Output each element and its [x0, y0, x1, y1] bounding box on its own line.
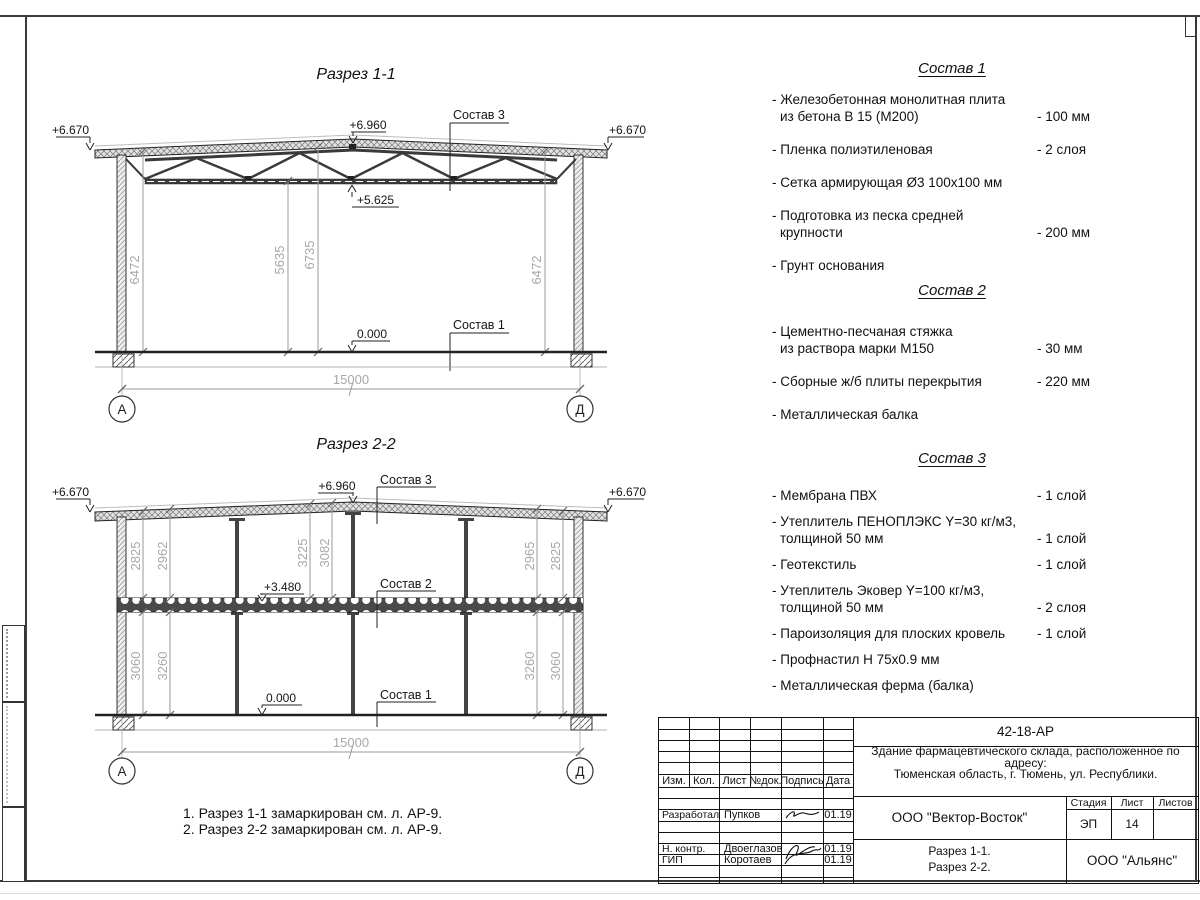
elevation-value: +6.960	[349, 118, 386, 132]
row-role: ГИП	[659, 854, 719, 865]
signature-razrabotal	[783, 809, 821, 821]
list-item: - Железобетонная монолитная плита из бет…	[772, 91, 1132, 125]
dim-value: 5635	[272, 246, 287, 275]
item-text: - Профнастил Н 75х0.9 мм	[772, 651, 1132, 668]
list-item: - Профнастил Н 75х0.9 мм	[772, 651, 1132, 668]
item-text: - Утеплитель Эковер Y=100 кг/м3,	[772, 582, 1132, 599]
col-header-data: Дата	[823, 774, 853, 787]
interior-columns	[229, 512, 474, 715]
composition-title: Состав 3	[772, 450, 1132, 467]
axis-bubble-d: Д	[567, 396, 593, 422]
item-text: - Цементно-песчаная стяжка	[772, 323, 1132, 340]
item-text: - Утеплитель ПЕНОПЛЭКС Y=30 кг/м3,	[772, 513, 1132, 530]
span-dim-value: 15000	[333, 735, 369, 750]
list-item: - Геотекстиль - 1 слой	[772, 556, 1132, 573]
axis-letter: Д	[575, 402, 584, 417]
side-stamp-text-strip	[6, 629, 8, 698]
section-2-2-drawing: +6.670 +6.670 +6.960 +3.480 0.000 Состав…	[50, 425, 650, 785]
elevation-value: +3.480	[264, 580, 301, 594]
span-dimension: 15000	[118, 719, 584, 759]
contractor-company: ООО "Альянс"	[1066, 839, 1198, 883]
designer-company: ООО "Вектор-Восток"	[853, 796, 1066, 839]
elevation-mark-floor: 0.000	[258, 691, 302, 715]
item-value: - 200 мм	[1037, 224, 1090, 241]
callout-label: Состав 2	[380, 577, 432, 591]
elevation-value: +6.670	[52, 485, 89, 499]
row-role: Разработал	[659, 809, 719, 821]
dim-value: 3260	[522, 652, 537, 681]
elevation-mark-eaves-right: +6.670	[604, 123, 646, 150]
col-header-list: Лист	[719, 774, 750, 787]
dim-value: 3225	[295, 539, 310, 568]
callout-label: Состав 1	[453, 318, 505, 332]
dim-value: 3260	[155, 652, 170, 681]
span-dim-value: 15000	[333, 372, 369, 387]
ground-floor	[95, 715, 607, 730]
item-value: - 2 слоя	[1037, 141, 1086, 158]
item-value: - 220 мм	[1037, 373, 1090, 390]
elevation-value: +5.625	[357, 193, 394, 207]
callout-roof-composition: Состав 3	[377, 473, 436, 524]
document-code: 42-18-АР	[853, 718, 1198, 746]
frame-top-border	[0, 15, 1200, 17]
callout-label: Состав 1	[380, 688, 432, 702]
sheets-label: Листов	[1153, 796, 1198, 809]
drawing-notes: 1. Разрез 1-1 замаркирован см. л. АР-9. …	[183, 806, 442, 837]
dim-value: 3060	[548, 652, 563, 681]
item-text: - Сетка армирующая Ø3 100х100 мм	[772, 174, 1132, 191]
dim-value: 2825	[128, 542, 143, 571]
composition-list-2: Состав 2 - Цементно-песчаная стяжка из р…	[772, 282, 1132, 439]
callout-label: Состав 3	[380, 473, 432, 487]
dim-value: 2825	[548, 542, 563, 571]
note-line: 2. Разрез 2-2 замаркирован см. л. АР-9.	[183, 822, 442, 838]
dim-value: 6472	[127, 256, 142, 285]
title-block: Изм. Кол. Лист №док. Подпись Дата Разраб…	[658, 717, 1199, 884]
composition-title: Состав 2	[772, 282, 1132, 299]
row-date: 01.19	[823, 843, 853, 854]
row-name: Коротаев	[721, 854, 781, 865]
list-item: - Пленка полиэтиленовая - 2 слоя	[772, 141, 1132, 158]
list-item: - Грунт основания	[772, 257, 1132, 274]
drawing-sheet: { "section1": { "title": "Разрез 1-1", "…	[0, 0, 1200, 900]
axis-letter: Д	[575, 764, 584, 779]
list-item: - Утеплитель Эковер Y=100 кг/м3, толщино…	[772, 582, 1132, 616]
project-name-line1: Здание фармацевтического склада, располо…	[855, 750, 1196, 764]
item-value: - 1 слой	[1037, 530, 1086, 547]
axis-letter: А	[117, 402, 126, 417]
elevation-mark-eaves-right: +6.670	[604, 485, 646, 512]
sheets-total	[1153, 809, 1198, 839]
stage-value: ЭП	[1066, 809, 1111, 839]
dim-value: 6472	[529, 256, 544, 285]
side-stamp-box-1	[2, 625, 25, 702]
row-date: 01.19	[823, 854, 853, 865]
item-text: - Металлическая балка	[772, 406, 1132, 423]
list-item: - Цементно-песчаная стяжка из раствора м…	[772, 323, 1132, 357]
sheet-label: Лист	[1111, 796, 1153, 809]
elevation-mark-floor: 0.000	[348, 327, 390, 352]
side-stamp-box-2	[2, 702, 25, 807]
note-line: 1. Разрез 1-1 замаркирован см. л. АР-9.	[183, 806, 442, 822]
row-name: Двоеглазов	[721, 843, 781, 854]
column-left	[117, 155, 126, 352]
axis-letter: А	[117, 764, 126, 779]
column-left	[117, 517, 126, 715]
item-text: - Металлическая ферма (балка)	[772, 677, 1132, 694]
list-item: - Сборные ж/б плиты перекрытия - 220 мм	[772, 373, 1132, 390]
list-item: - Металлическая ферма (балка)	[772, 677, 1132, 694]
callout-floor-composition: Состав 1	[377, 688, 436, 727]
item-text: - Подготовка из песка средней	[772, 207, 1132, 224]
elevation-mark-eaves-left: +6.670	[52, 485, 94, 512]
column-right	[574, 517, 583, 715]
sheet-number: 14	[1111, 809, 1153, 839]
lower-dimensions: 3060 3260 3260 3060	[128, 608, 567, 719]
composition-list-3: Состав 3 - Мембрана ПВХ - 1 слой - Утепл…	[772, 450, 1132, 703]
composition-title: Состав 1	[772, 60, 1132, 77]
col-header-podpis: Подпись	[781, 774, 823, 787]
elevation-value: 0.000	[266, 691, 296, 705]
corner-stamp-box	[1185, 17, 1196, 37]
footing-right	[571, 354, 592, 367]
paper-edge-line	[0, 893, 1200, 894]
elevation-value: 0.000	[357, 327, 387, 341]
row-date: 01.19	[823, 809, 853, 821]
item-value: - 1 слой	[1037, 625, 1086, 642]
list-item: - Сетка армирующая Ø3 100х100 мм	[772, 174, 1132, 191]
list-item: - Подготовка из песка средней крупности …	[772, 207, 1132, 241]
item-value: - 2 слоя	[1037, 599, 1086, 616]
composition-list-1: Состав 1 - Железобетонная монолитная пли…	[772, 60, 1132, 290]
elevation-mark-truss-bottom: +5.625	[348, 185, 399, 207]
axis-bubble-a: А	[109, 758, 135, 784]
frame-left-border	[25, 15, 27, 882]
side-stamp-box-3	[2, 807, 25, 882]
footing-left	[113, 354, 134, 367]
row-name: Пупков	[721, 809, 781, 821]
item-text: - Грунт основания	[772, 257, 1132, 274]
signature-gip	[781, 840, 823, 866]
project-name-line2: Тюменская область, г. Тюмень, ул. Респуб…	[855, 767, 1196, 781]
item-value: - 1 слой	[1037, 487, 1086, 504]
axis-bubble-d: Д	[567, 758, 593, 784]
list-item: - Металлическая балка	[772, 406, 1132, 423]
list-item: - Утеплитель ПЕНОПЛЭКС Y=30 кг/м3, толщи…	[772, 513, 1132, 547]
elevation-value: +6.960	[318, 479, 355, 493]
side-stamp-text-strip	[6, 706, 8, 803]
elevation-value: +6.670	[52, 123, 89, 137]
dim-value: 2962	[155, 542, 170, 571]
item-value: - 1 слой	[1037, 556, 1086, 573]
list-item: - Мембрана ПВХ - 1 слой	[772, 487, 1132, 504]
callout-floor-composition: Состав 1	[450, 318, 509, 371]
span-dimension: 15000	[118, 356, 584, 396]
column-right	[574, 155, 583, 352]
elevation-value: +6.670	[609, 485, 646, 499]
section-1-1-drawing: +6.670 +6.670 +6.960 +5.625 0.000 Состав…	[50, 55, 650, 425]
item-value: - 100 мм	[1037, 108, 1090, 125]
callout-label: Состав 3	[453, 108, 505, 122]
col-header-kol: Кол.	[689, 774, 719, 787]
item-value: - 30 мм	[1037, 340, 1083, 357]
stage-label: Стадия	[1066, 796, 1111, 809]
item-text: - Железобетонная монолитная плита	[772, 91, 1132, 108]
drawing-name-line1: Разрез 1-1.	[853, 843, 1066, 858]
dim-value: 3060	[128, 652, 143, 681]
drawing-name-line2: Разрез 2-2.	[853, 859, 1066, 874]
footing-left	[113, 717, 134, 730]
list-item: - Пароизоляция для плоских кровель - 1 с…	[772, 625, 1132, 642]
footing-right	[571, 717, 592, 730]
elevation-mark-eaves-left: +6.670	[52, 123, 94, 150]
row-role: Н. контр.	[659, 843, 719, 854]
col-header-izm: Изм.	[659, 774, 689, 787]
dim-value: 3082	[317, 539, 332, 568]
col-header-ndok: №док.	[750, 774, 781, 787]
ground-floor	[95, 352, 607, 367]
elevation-value: +6.670	[609, 123, 646, 137]
floor-slab	[117, 598, 583, 612]
axis-bubble-a: А	[109, 396, 135, 422]
dim-value: 2965	[522, 542, 537, 571]
dim-value: 6735	[302, 241, 317, 270]
